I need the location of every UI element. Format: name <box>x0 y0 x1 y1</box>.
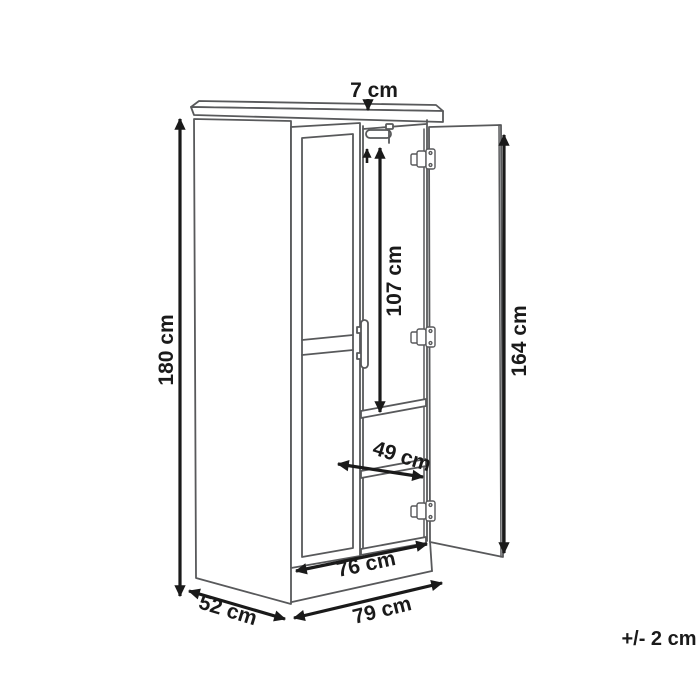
dim-label-total-width: 79 cm <box>350 592 413 629</box>
dim-label-top-gap: 7 cm <box>350 79 398 102</box>
opening-top-edge <box>363 124 426 129</box>
dim-label-total-height: 180 cm <box>155 314 178 385</box>
open-right-door <box>429 125 503 557</box>
dim-label-hanging-height: 107 cm <box>383 245 406 316</box>
wardrobe-dimension-diagram: 7 cm 180 cm 107 cm 164 cm 49 cm 76 cm 52… <box>0 0 700 700</box>
hinge-top-icon <box>411 149 435 169</box>
hinge-middle-icon <box>411 327 435 347</box>
hinge-bottom-icon <box>411 501 435 521</box>
dim-label-depth: 52 cm <box>196 591 260 630</box>
closed-left-door <box>291 123 368 568</box>
tolerance-note: +/- 2 cm <box>621 628 696 650</box>
wardrobe-drawing <box>191 101 503 604</box>
dim-label-door-height: 164 cm <box>508 305 531 376</box>
shelf-upper <box>361 399 426 418</box>
side-panel <box>194 119 291 604</box>
